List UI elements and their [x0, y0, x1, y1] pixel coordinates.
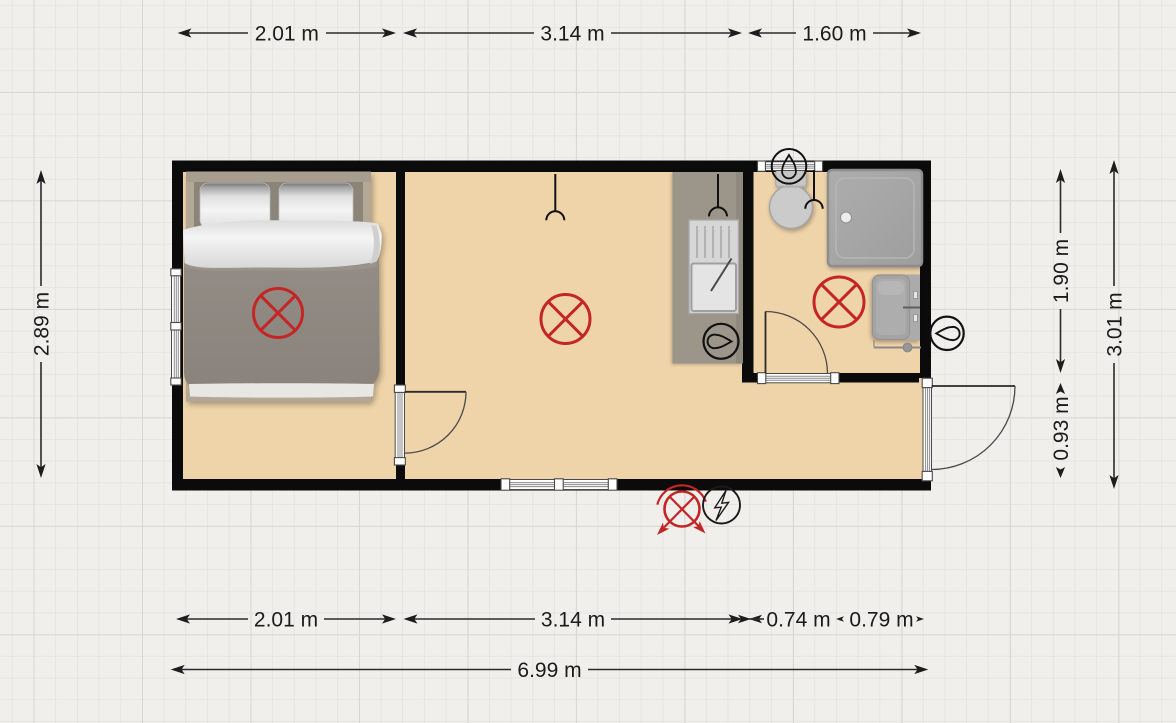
svg-text:3.01 m: 3.01 m [1104, 292, 1127, 356]
svg-text:2.89 m: 2.89 m [31, 292, 54, 356]
svg-text:0.74 m: 0.74 m [766, 609, 830, 632]
svg-text:1.90 m: 1.90 m [1050, 239, 1073, 303]
svg-text:2.01 m: 2.01 m [255, 23, 319, 46]
svg-text:2.01 m: 2.01 m [254, 609, 318, 632]
svg-text:0.93 m: 0.93 m [1050, 396, 1073, 460]
svg-text:0.79 m: 0.79 m [849, 609, 913, 632]
svg-text:1.60 m: 1.60 m [802, 23, 866, 46]
svg-text:3.14 m: 3.14 m [541, 609, 605, 632]
svg-text:6.99 m: 6.99 m [517, 659, 581, 682]
svg-text:3.14 m: 3.14 m [540, 23, 604, 46]
